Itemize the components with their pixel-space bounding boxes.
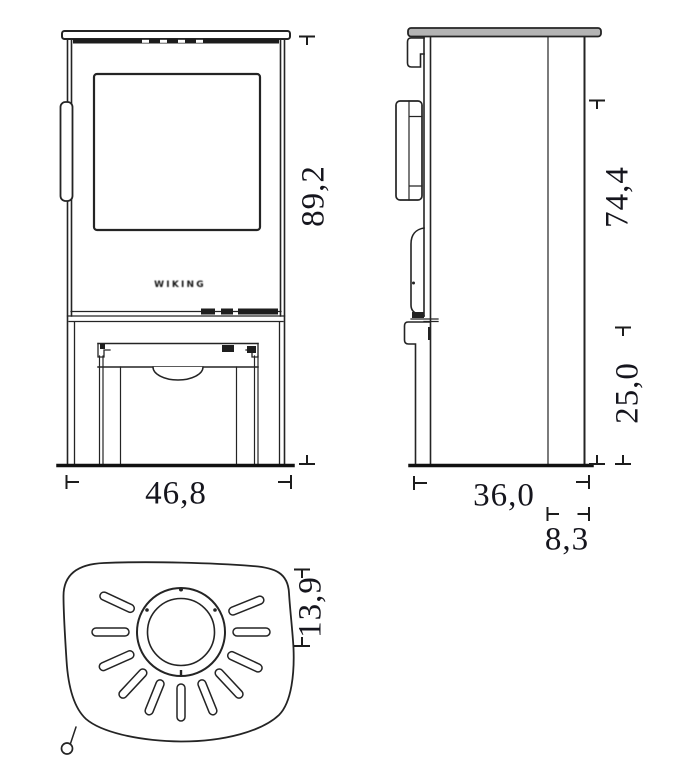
tick-front-width-left (67, 476, 79, 488)
front-top-plate (62, 31, 290, 39)
line-art (0, 0, 683, 766)
side-door-handle (396, 101, 422, 200)
dim-front-height: 89,2 (298, 165, 331, 227)
front-base-shelf (98, 344, 258, 381)
top-handle-knob (62, 727, 77, 754)
tick-side-upper-bottom (590, 456, 604, 464)
tick-side-upper-top (590, 101, 604, 109)
side-top-plate (408, 28, 601, 37)
front-door-window (94, 74, 260, 230)
tick-front-height-bottom (300, 456, 314, 464)
brand-logo: WIKING (154, 280, 206, 290)
dim-side-base-height: 25,0 (612, 362, 645, 424)
dim-side-flue-offset: 8,3 (545, 524, 589, 557)
tick-front-height-top (300, 37, 314, 45)
side-base-bracket (405, 322, 431, 464)
tick-front-width-right (279, 476, 291, 488)
side-base-dark-tick (428, 327, 431, 340)
top-view (62, 562, 294, 754)
dim-side-depth: 36,0 (473, 480, 535, 513)
tick-side-base-top (616, 328, 630, 336)
tick-side-base-bottom (616, 456, 630, 464)
side-front-face (424, 37, 431, 464)
tick-side-flue-left (548, 508, 559, 520)
front-door-bottom (71, 309, 281, 315)
front-vent-band (73, 39, 279, 44)
technical-drawing-canvas: 89,2 46,8 74,4 25,0 36,0 8,3 13,9 WIKING (0, 0, 683, 766)
front-drawer-grip (153, 367, 203, 380)
tick-top-flue-bottom (295, 638, 309, 646)
tick-side-depth-right (577, 476, 589, 488)
front-door-handle (61, 102, 73, 201)
side-view (396, 28, 601, 466)
tick-side-flue-right (579, 508, 590, 520)
top-flue-collar-outer (137, 588, 225, 676)
front-view (58, 31, 293, 466)
side-top-bracket (408, 38, 425, 67)
tick-side-depth-left (414, 477, 426, 489)
dim-top-flue-offset: 13,9 (295, 576, 328, 638)
dim-side-upper-height: 74,4 (602, 166, 635, 228)
side-latch-dot (412, 282, 415, 285)
dim-front-width: 46,8 (145, 478, 207, 511)
side-lower-door (411, 228, 424, 316)
